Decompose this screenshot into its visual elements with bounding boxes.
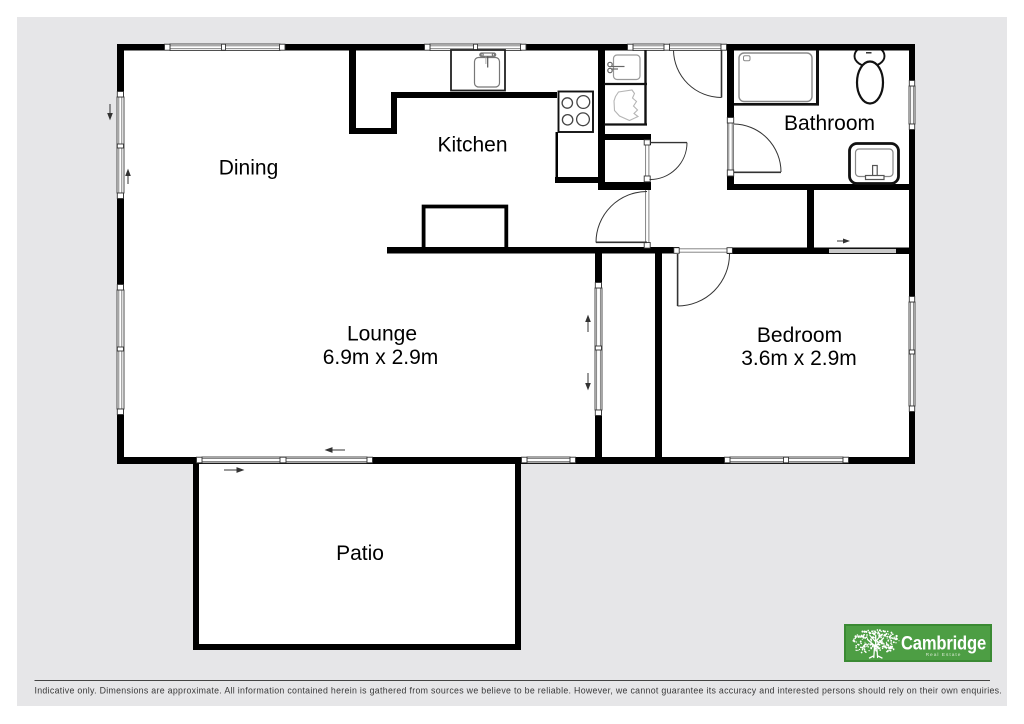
svg-text:Bedroom: Bedroom <box>757 324 842 347</box>
svg-text:3.6m x 2.9m: 3.6m x 2.9m <box>741 347 857 370</box>
svg-text:Patio: Patio <box>336 542 384 565</box>
svg-text:Cambridge: Cambridge <box>901 632 986 654</box>
svg-text:Indicative only. Dimensions ar: Indicative only. Dimensions are approxim… <box>35 686 1003 696</box>
svg-text:Dining: Dining <box>219 157 279 180</box>
svg-text:Kitchen: Kitchen <box>437 134 507 157</box>
svg-text:Lounge: Lounge <box>347 323 417 346</box>
svg-text:6.9m x 2.9m: 6.9m x 2.9m <box>323 346 439 369</box>
svg-text:Real Estate: Real Estate <box>926 652 962 658</box>
svg-text:Bathroom: Bathroom <box>784 112 875 135</box>
